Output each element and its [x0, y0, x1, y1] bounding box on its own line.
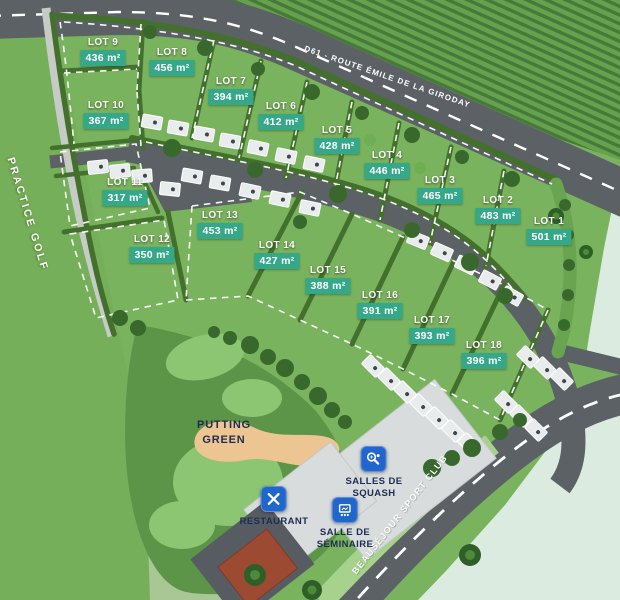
lot-marker-15[interactable]: LOT 15 388 m²	[305, 266, 350, 294]
map-illustration	[0, 0, 620, 600]
lot-name: LOT 4	[372, 151, 402, 161]
squash-icon	[361, 446, 387, 472]
lot-area-badge: 456 m²	[149, 60, 194, 76]
amenity-seminaire: SALLE DE SÉMINAIRE	[317, 497, 373, 552]
amenity-label: SALLE DE SÉMINAIRE	[317, 527, 373, 552]
amenity-restaurant: RESTAURANT	[240, 486, 309, 528]
lot-area-badge: 453 m²	[197, 223, 242, 239]
lot-area-badge: 427 m²	[254, 253, 299, 269]
lot-marker-14[interactable]: LOT 14 427 m²	[254, 241, 299, 269]
lot-name: LOT 5	[322, 126, 352, 136]
lot-area-badge: 446 m²	[364, 163, 409, 179]
lot-name: LOT 1	[534, 217, 564, 227]
lot-marker-12[interactable]: LOT 12 350 m²	[129, 235, 174, 263]
lot-area-badge: 391 m²	[357, 303, 402, 319]
amenity-label: RESTAURANT	[240, 516, 309, 528]
lot-marker-18[interactable]: LOT 18 396 m²	[461, 341, 506, 369]
lot-name: LOT 2	[483, 196, 513, 206]
lot-area-badge: 465 m²	[417, 188, 462, 204]
lot-marker-3[interactable]: LOT 3 465 m²	[417, 176, 462, 204]
lot-name: LOT 15	[310, 266, 346, 276]
lot-name: LOT 12	[134, 235, 170, 245]
lot-marker-17[interactable]: LOT 17 393 m²	[409, 316, 454, 344]
lot-name: LOT 7	[216, 77, 246, 87]
putting-green-label: PUTTING GREEN	[197, 418, 251, 448]
lot-marker-8[interactable]: LOT 8 456 m²	[149, 48, 194, 76]
lot-marker-9[interactable]: LOT 9 436 m²	[80, 38, 125, 66]
lot-marker-5[interactable]: LOT 5 428 m²	[314, 126, 359, 154]
lot-area-badge: 483 m²	[475, 208, 520, 224]
lot-area-badge: 394 m²	[208, 89, 253, 105]
lot-marker-13[interactable]: LOT 13 453 m²	[197, 211, 242, 239]
lot-marker-16[interactable]: LOT 16 391 m²	[357, 291, 402, 319]
lot-marker-4[interactable]: LOT 4 446 m²	[364, 151, 409, 179]
lot-marker-2[interactable]: LOT 2 483 m²	[475, 196, 520, 224]
lot-name: LOT 11	[107, 178, 143, 188]
lot-name: LOT 8	[157, 48, 187, 58]
site-plan-map: D61 - ROUTE ÉMILE DE LA GIRODAY PRACTICE…	[0, 0, 620, 600]
lot-marker-10[interactable]: LOT 10 367 m²	[83, 101, 128, 129]
lot-marker-6[interactable]: LOT 6 412 m²	[258, 102, 303, 130]
lot-name: LOT 14	[259, 241, 295, 251]
lot-area-badge: 501 m²	[526, 229, 571, 245]
lot-name: LOT 16	[362, 291, 398, 301]
lot-area-badge: 396 m²	[461, 353, 506, 369]
lot-marker-1[interactable]: LOT 1 501 m²	[526, 217, 571, 245]
amenity-squash: SALLES DE SQUASH	[346, 446, 403, 501]
lot-name: LOT 17	[414, 316, 450, 326]
lot-name: LOT 18	[466, 341, 502, 351]
lot-name: LOT 13	[202, 211, 238, 221]
lot-area-badge: 388 m²	[305, 278, 350, 294]
lot-area-badge: 393 m²	[409, 328, 454, 344]
lot-area-badge: 367 m²	[83, 113, 128, 129]
lot-area-badge: 412 m²	[258, 114, 303, 130]
lot-area-badge: 350 m²	[129, 247, 174, 263]
lot-name: LOT 6	[266, 102, 296, 112]
restaurant-icon	[261, 486, 287, 512]
seminar-room-icon	[332, 497, 358, 523]
lot-marker-11[interactable]: LOT 11 317 m²	[102, 178, 147, 206]
lot-name: LOT 9	[88, 38, 118, 48]
lot-area-badge: 317 m²	[102, 190, 147, 206]
lot-area-badge: 428 m²	[314, 138, 359, 154]
lot-area-badge: 436 m²	[80, 50, 125, 66]
lot-name: LOT 10	[88, 101, 124, 111]
lot-marker-7[interactable]: LOT 7 394 m²	[208, 77, 253, 105]
lot-name: LOT 3	[425, 176, 455, 186]
